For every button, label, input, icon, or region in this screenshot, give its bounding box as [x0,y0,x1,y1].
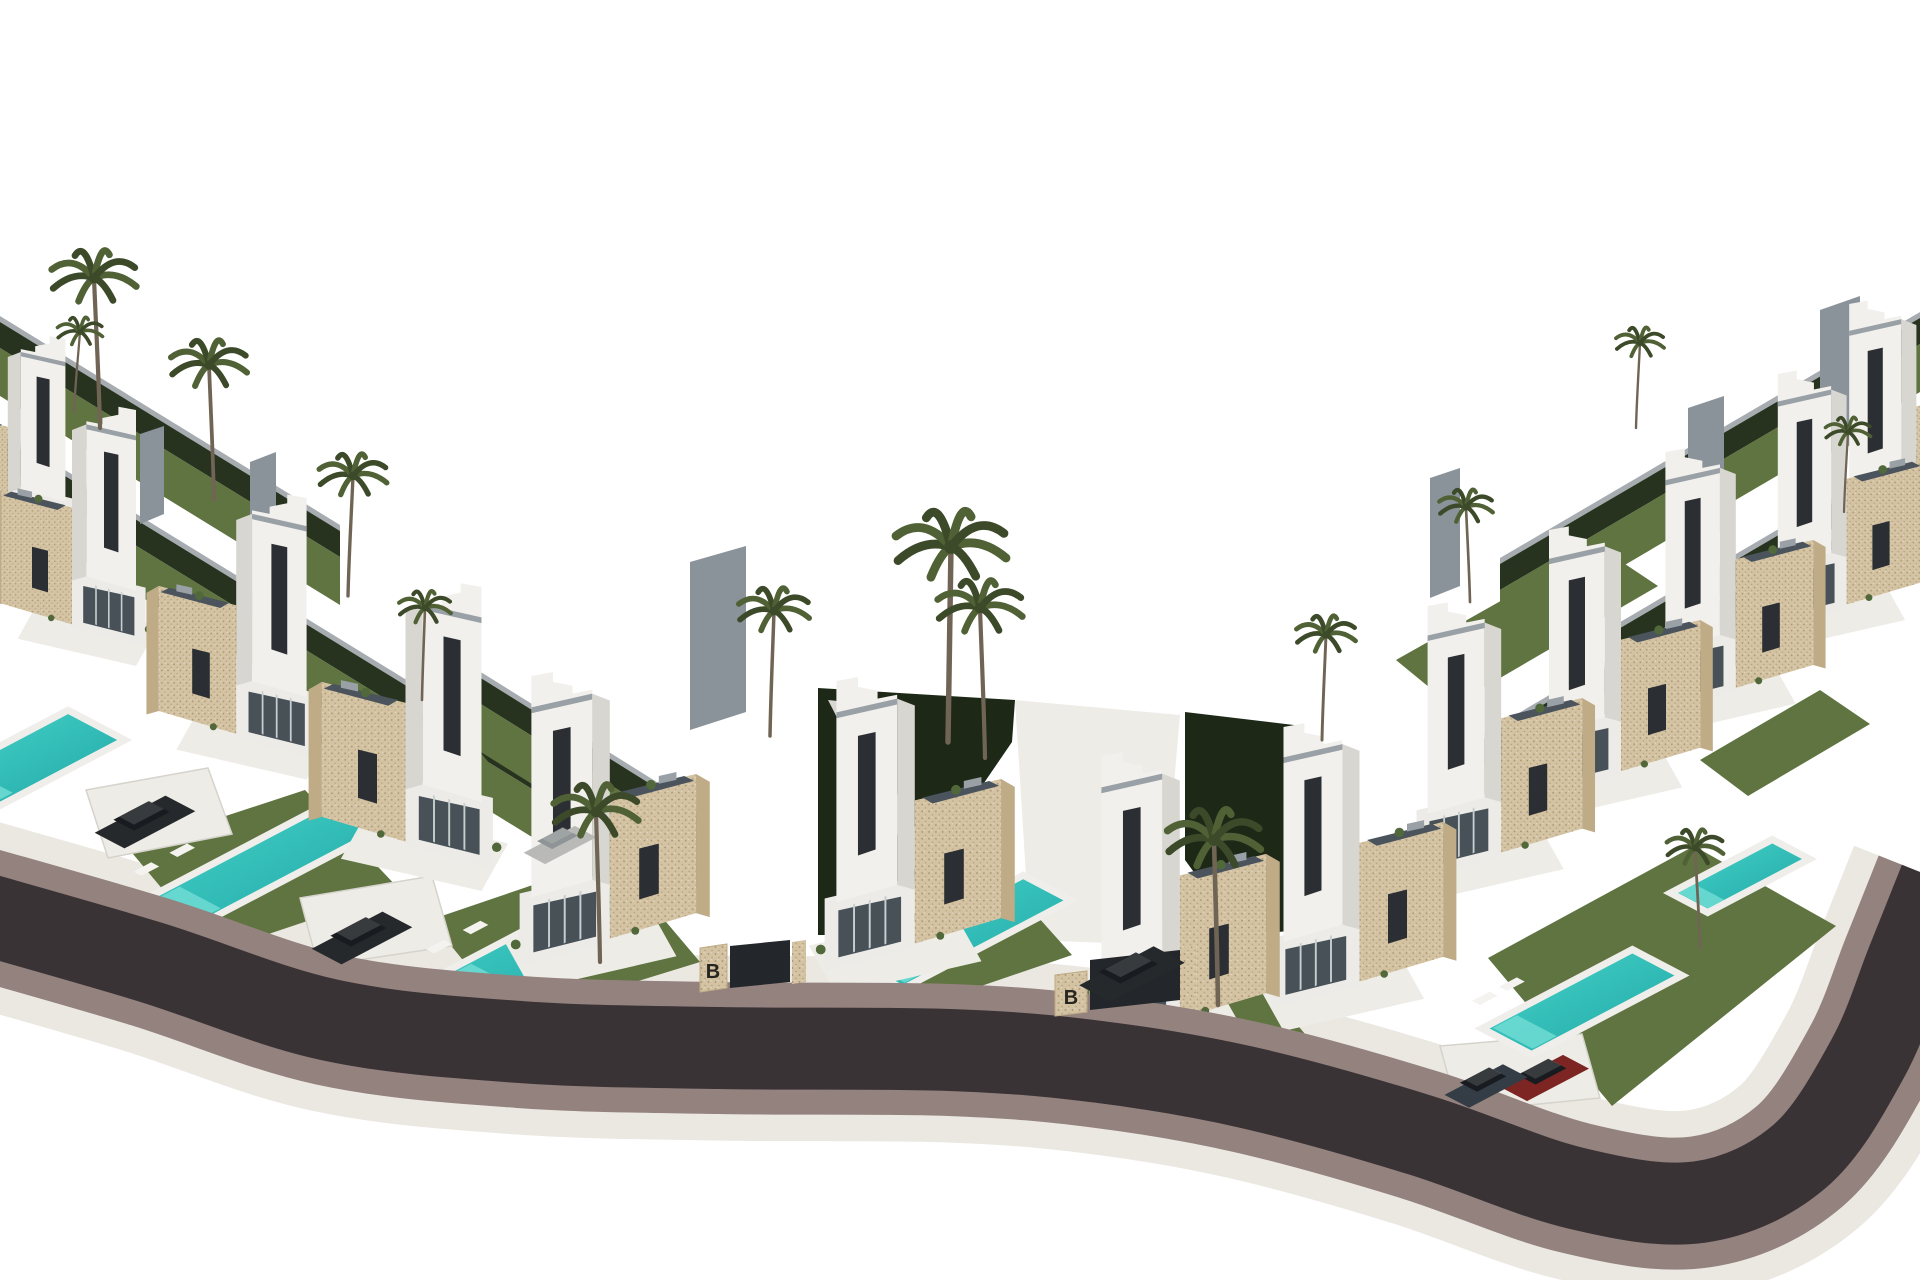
shrub [1521,842,1528,849]
shrub [1768,545,1777,554]
gate-emblem-text: B [1064,987,1078,1009]
shrub [951,785,961,795]
shrub [631,927,639,935]
shrub [1395,828,1405,838]
gate-pillar [792,940,806,984]
shrub [511,940,521,950]
shrub [1755,677,1762,684]
shrub [210,723,217,730]
shrub [1216,860,1226,870]
architectural-render: BB [0,0,1920,1280]
shrub [1654,625,1663,634]
scene-svg: BB [0,0,1920,1280]
shrub [936,932,944,940]
shrub [1380,970,1388,978]
shrub [492,843,502,853]
shrub [1535,704,1544,713]
gate-panel [730,940,790,988]
shrub [1866,594,1873,601]
shrub [377,830,385,838]
shrub [48,615,54,621]
shrub [34,495,42,503]
shrub [1878,465,1887,474]
shrub [1641,760,1648,767]
gate-emblem-text: B [706,961,720,983]
shrub [195,591,204,600]
gate-pillar [1182,946,1196,998]
shrub [816,945,826,955]
shrub [361,688,371,698]
shrub [646,780,656,790]
